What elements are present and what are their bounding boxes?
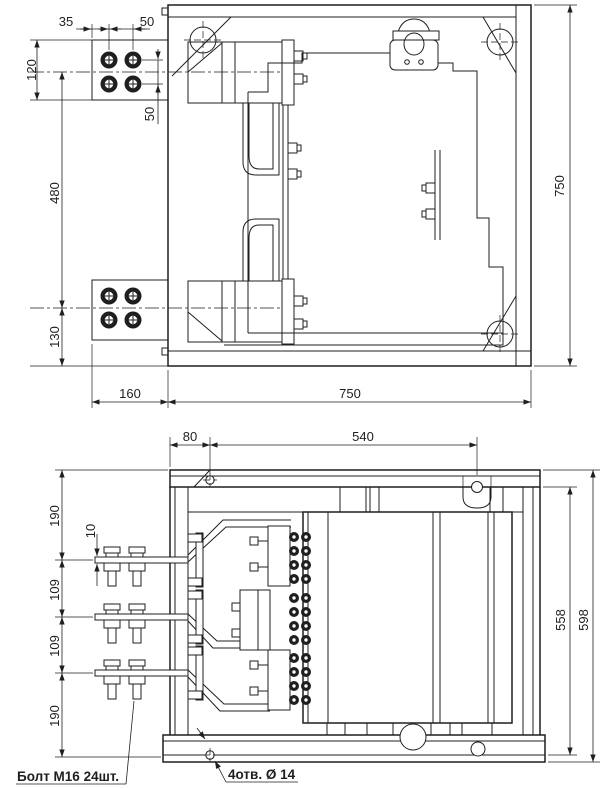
lifting-lug-hole [472, 482, 483, 493]
dim-label-598: 598 [576, 609, 591, 631]
dim-label-750-height: 750 [552, 175, 567, 197]
top-view: 35 50 120 50 480 130 [24, 5, 577, 408]
base-channel [163, 724, 545, 762]
dim-label-130: 130 [47, 326, 62, 348]
front-view-dimensions: 80 540 190 109 109 190 10 [47, 429, 600, 762]
core-body [303, 512, 512, 735]
dim-label-109-b: 109 [47, 635, 62, 657]
dim-label-190-top: 190 [47, 505, 62, 527]
terminal-bars [95, 533, 203, 700]
terminal-block-upper [92, 40, 168, 100]
winding-clamps [232, 526, 290, 710]
drain-roller [400, 724, 426, 750]
top-connector [390, 19, 439, 70]
lifting-hole-top-left [184, 21, 222, 59]
dim-label-109-a: 109 [47, 579, 62, 601]
tank-body-outline [224, 53, 503, 345]
lifting-hole-top-right [481, 23, 519, 61]
dim-label-190-bottom: 190 [47, 705, 62, 727]
dim-label-10: 10 [83, 524, 98, 538]
tank-frame [162, 5, 531, 366]
bolt-note-label: Болт М16 24шт. [17, 769, 119, 784]
dim-label-80: 80 [183, 429, 197, 444]
lifting-hole-bottom-right [481, 315, 519, 353]
dim-label-480: 480 [47, 182, 62, 204]
technical-drawing-page: 35 50 120 50 480 130 [0, 0, 600, 789]
holes-note-label: 4отв. Ø 14 [228, 767, 296, 782]
drawing-canvas: 35 50 120 50 480 130 [0, 0, 600, 789]
dim-label-750-width: 750 [339, 386, 361, 401]
dim-label-160: 160 [119, 386, 141, 401]
dim-label-558: 558 [553, 609, 568, 631]
dim-label-50-vertical: 50 [142, 107, 157, 121]
dim-label-120: 120 [24, 59, 39, 81]
terminal-block-lower [92, 280, 168, 340]
frame [170, 470, 540, 735]
base-mounting-hole [203, 748, 217, 762]
dim-label-540: 540 [352, 429, 374, 444]
front-view: 80 540 190 109 109 190 10 [16, 429, 600, 784]
dim-label-35: 35 [59, 14, 73, 29]
dim-label-50-horizontal: 50 [140, 14, 154, 29]
